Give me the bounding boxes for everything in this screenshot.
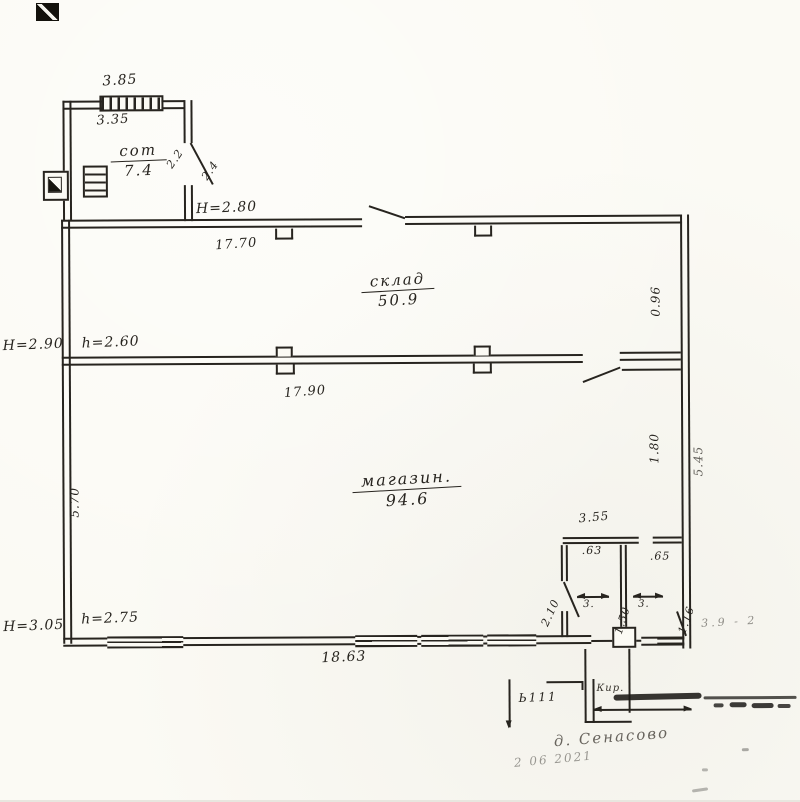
room-area-sklad: 50.9: [362, 289, 436, 311]
pilaster: [275, 229, 293, 240]
faint-corner-note: 3.9 - 2: [701, 615, 758, 629]
wall-tambour-bottom-right: [657, 638, 684, 645]
dim-height-annex: H=2.80: [196, 200, 258, 216]
room-label-magazin: магазин. 94.6: [351, 467, 462, 513]
window: [487, 634, 536, 646]
dim-magazin-width: 17.90: [284, 384, 327, 400]
wall-annex-right-stub: [184, 185, 193, 221]
dim-bottom-width: 18.63: [321, 649, 367, 665]
dim-right-top: 0.96: [649, 286, 661, 317]
dim-ceiling-sklad: h=2.60: [81, 334, 139, 350]
wall-right: [680, 214, 691, 648]
door-swing-top-wall: [369, 205, 406, 219]
flue-symbol: [48, 177, 62, 193]
dim-tambour-depth: 2.10: [539, 597, 561, 627]
dim-mark-right: 3.: [638, 600, 650, 610]
dim-annex-window: 3.35: [96, 113, 130, 128]
dim-arrow-left-room: [577, 596, 609, 598]
stamp-smudge: [778, 704, 791, 708]
pilaster: [473, 364, 492, 374]
dim-mark-left: 3.: [583, 600, 595, 610]
stamp-smudge: [752, 703, 774, 708]
pilaster: [474, 226, 492, 237]
floor-plan: 3.85 3.35 сот 7.4 2.2 2.4 H=2.80: [0, 0, 800, 802]
wall-top-right-segment: [405, 215, 682, 225]
porch-dimension-arrow: [594, 708, 692, 710]
wall-top-left-segment: [61, 218, 362, 229]
stamp-text-kir: Кир.: [596, 684, 624, 694]
dim-right-mid: 1.80: [648, 433, 660, 464]
dim-right-outer: 5.45: [692, 446, 704, 477]
dim-outer-height-magazin: H=3.05: [3, 618, 65, 634]
dim-tambour-width: 3.55: [578, 510, 610, 525]
dim-door-left: .63: [582, 545, 603, 556]
handwriting-place: д. Сенасово: [553, 726, 669, 750]
dim-arrow-right-room: [633, 596, 663, 598]
stamp-smudge: [714, 703, 724, 707]
room-area-annex: 7.4: [111, 160, 167, 180]
porch-right-line: [628, 649, 630, 713]
pilaster: [276, 365, 295, 375]
pilaster: [276, 347, 293, 357]
stamp-code: Ь111: [518, 691, 557, 705]
stamp-smudge: [730, 702, 747, 707]
stamp-cap-tick: [581, 681, 583, 690]
dim-left-depth: 5.70: [68, 487, 80, 518]
stamp-cap-line: [546, 681, 583, 683]
dim-sklad-width: 17.70: [215, 236, 258, 252]
faint-mark: [742, 748, 749, 751]
stamp-smudge: [614, 693, 702, 701]
scanned-floor-plan-page: 3.85 3.35 сот 7.4 2.2 2.4 H=2.80: [0, 0, 800, 800]
room-name-annex: сот: [110, 141, 166, 162]
wall-tambour-left-upper: [561, 545, 568, 581]
door-mark-right: 2.4: [200, 159, 221, 182]
wall-dividing-right: [620, 352, 681, 361]
dim-outer-height-sklad: H=2.90: [2, 337, 64, 353]
dim-right-room-width: 1.16: [676, 605, 696, 636]
faint-mark: [702, 768, 708, 771]
door-swing-dividing: [583, 367, 621, 383]
stamp-box-line: [592, 679, 594, 723]
porch-left-line: [584, 649, 586, 723]
wall-annex-left: [62, 101, 72, 221]
wall-dividing-inner-line: [622, 369, 681, 371]
window-annex: [99, 95, 163, 111]
leader-line: [508, 679, 510, 727]
stamp-smudge: [704, 696, 797, 699]
wall-tambour-top-right: [653, 537, 682, 544]
door-mark-left: 2.2: [165, 147, 186, 170]
window: [107, 636, 183, 648]
room-label-sklad: склад 50.9: [360, 270, 435, 312]
wall-dividing-left: [62, 354, 583, 366]
wall-annex-right-upper: [183, 100, 192, 143]
dim-door-right: .65: [650, 551, 671, 562]
window: [355, 635, 417, 647]
dim-annex-width: 3.85: [102, 72, 138, 88]
dim-ceiling-magazin: h=2.75: [81, 610, 139, 626]
window: [421, 635, 483, 647]
handwriting-date: 2 06 2021: [513, 750, 593, 769]
pilaster: [474, 346, 491, 356]
room-label-annex: сот 7.4: [110, 141, 167, 181]
faint-mark: [692, 787, 708, 792]
stove-symbol: [83, 166, 108, 198]
wall-left: [61, 220, 72, 644]
wall-tambour-left-lower: [561, 611, 568, 637]
